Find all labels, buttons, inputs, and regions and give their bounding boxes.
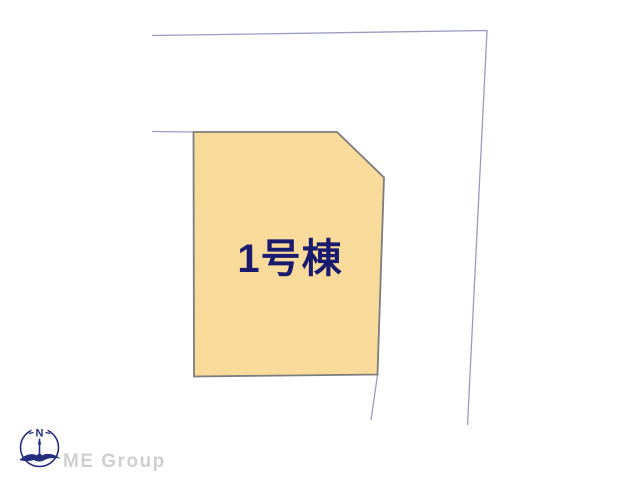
lot-1-label: 1号棟 [237,237,342,281]
compass-north-icon: N [20,424,61,467]
plot-plan-canvas: 1号棟 N ME Group [0,0,640,480]
site-plan-drawing: 1号棟 N ME Group [0,0,640,480]
site-boundary-left-stub-line [152,132,194,133]
compass-right-tick [46,433,51,434]
site-boundary-lower-stub-line [371,375,378,420]
compass-left-tick [29,433,34,434]
company-name-text: ME Group [63,451,166,472]
